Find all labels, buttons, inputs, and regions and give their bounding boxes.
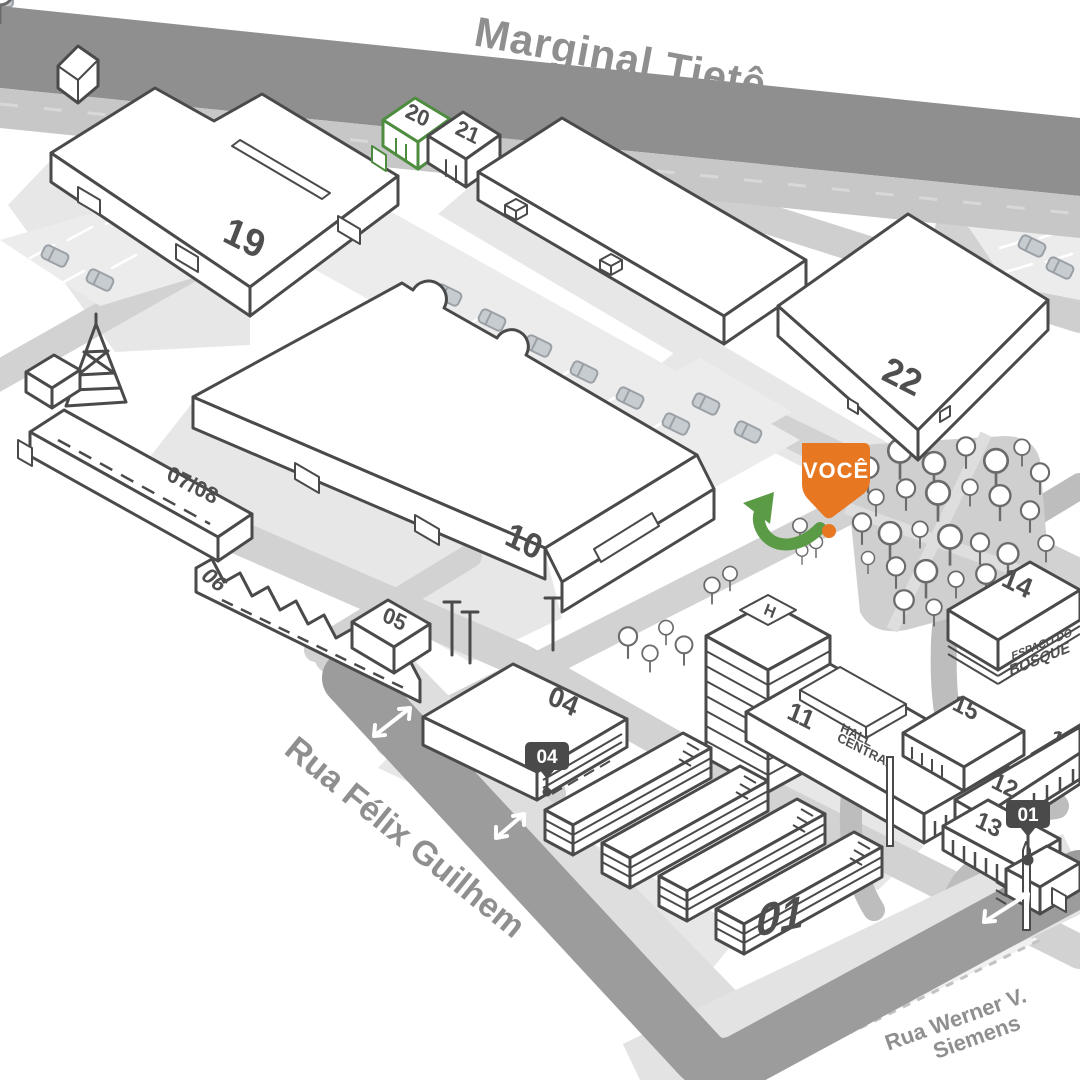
voce-label: VOCÊ [803,458,869,483]
map-canvas: 19 20 21 22 [0,0,1080,1080]
chevron-arrow [1064,424,1074,440]
tree [676,636,693,665]
pin-badge-01-label: 01 [1017,805,1039,826]
tree [704,577,720,604]
voce-dot [822,524,836,538]
tree [619,627,637,659]
roof-unit [505,199,527,220]
venue-map: 19 20 21 22 [0,0,1080,1080]
pin-badge-04-label: 04 [536,747,558,768]
roof-unit [600,254,622,275]
tree [642,645,658,672]
tree [659,620,673,645]
building-01-label: 01 [752,885,809,947]
